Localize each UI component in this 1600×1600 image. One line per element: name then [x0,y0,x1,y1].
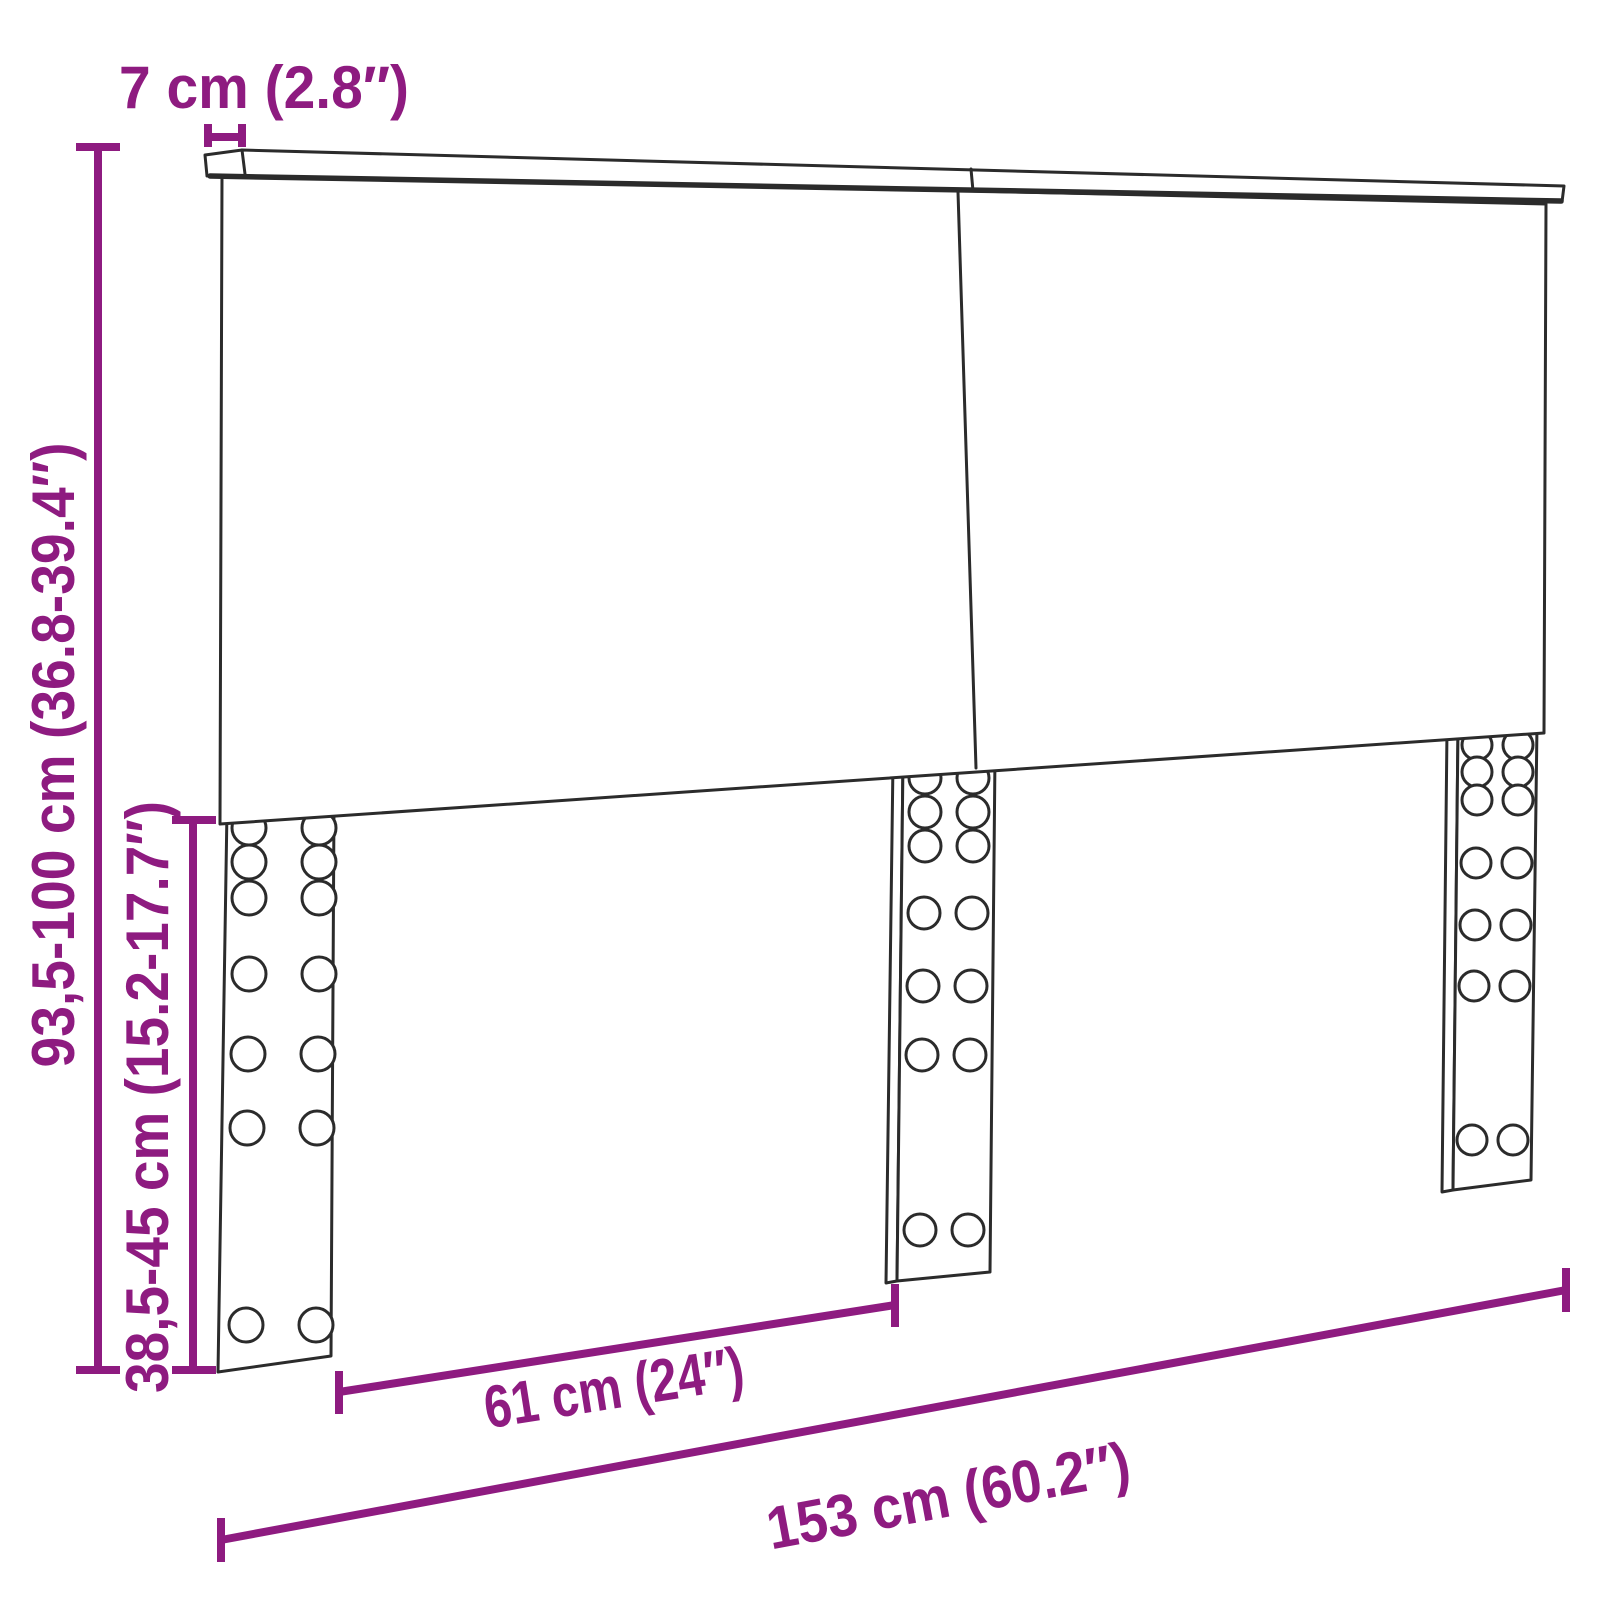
dim-label-total-height: 93,5-100 cm (36.8-39.4″) [20,443,87,1068]
headboard-panels [220,174,1546,824]
dim-label-top-thickness: 7 cm (2.8″) [119,54,409,121]
headboard-dimension-diagram: 7 cm (2.8″) 93,5-100 cm (36.8-39.4″) 38,… [0,0,1600,1600]
diagram-canvas: 7 cm (2.8″) 93,5-100 cm (36.8-39.4″) 38,… [0,0,1600,1600]
dim-label-total-width: 153 cm (60.2″) [761,1429,1135,1562]
panel-outline [220,174,1546,824]
dim-label-leg-height: 38,5-45 cm (15.2-17.7″) [114,801,181,1393]
headboard-drawing [205,150,1564,1372]
headboard-leg-middle [886,756,995,1283]
headboard-leg-left [218,804,336,1372]
headboard-leg-right [1442,725,1537,1192]
dim-line-top-thickness [208,124,242,147]
